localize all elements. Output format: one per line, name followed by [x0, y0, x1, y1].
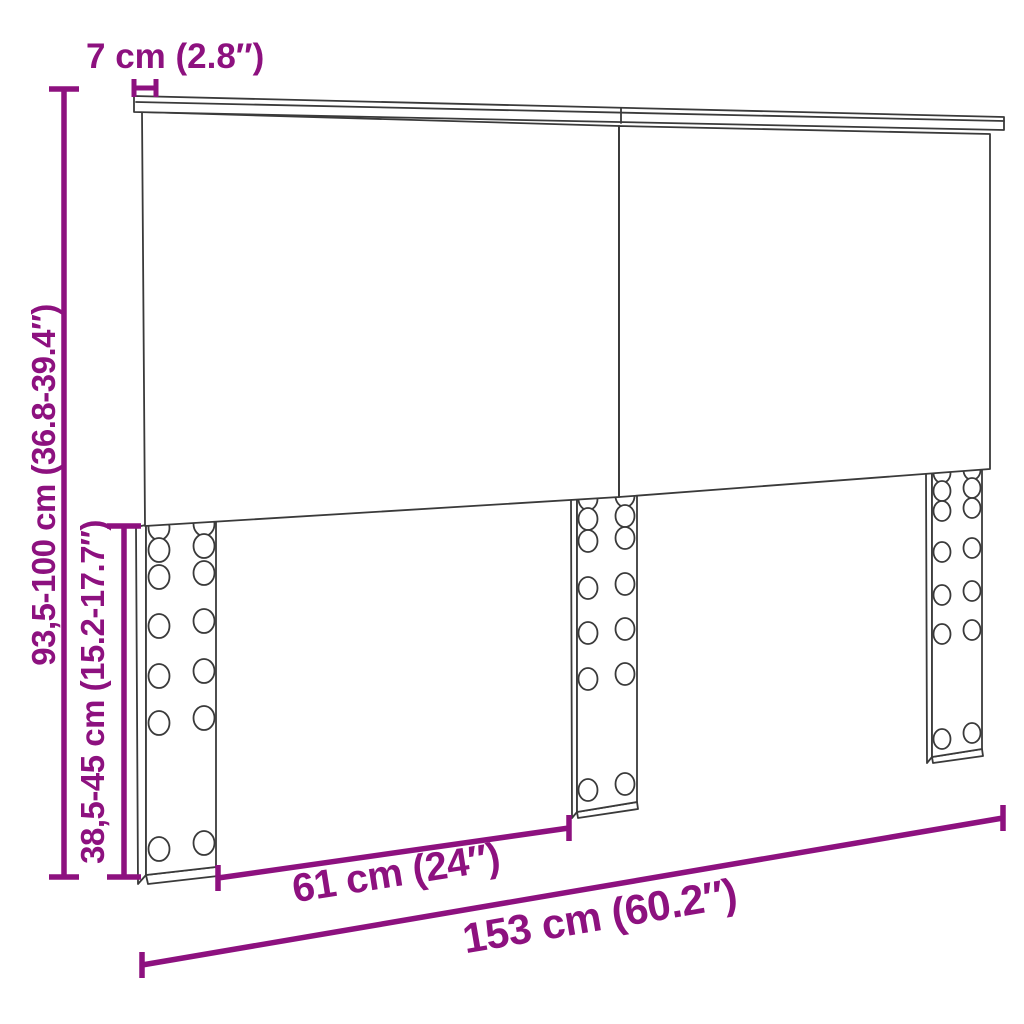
panel-left	[142, 112, 619, 526]
dim-leg-spacing-label: 61 cm (24″)	[289, 835, 503, 911]
dim-top-rail-thickness-label: 7 cm (2.8″)	[86, 37, 264, 76]
dim-total-width-label: 153 cm (60.2″)	[459, 869, 740, 962]
dim-total-height-label: 93,5-100 cm (36.8-39.4″)	[25, 304, 62, 666]
dim-top-rail-thickness: 7 cm (2.8″)	[86, 37, 264, 97]
dim-leg-height-label: 38,5-45 cm (15.2-17.7″)	[74, 520, 111, 864]
dim-total-width: 153 cm (60.2″)	[142, 805, 1003, 978]
dim-top-rail-thickness-bracket	[134, 79, 156, 97]
panel-left-face	[142, 112, 619, 526]
product-dimension-diagram: 7 cm (2.8″) 93,5-100 cm (36.8-39.4″) 38,…	[0, 0, 1024, 1024]
dim-total-height: 93,5-100 cm (36.8-39.4″)	[25, 89, 79, 877]
leg-middle	[571, 485, 638, 818]
headboard-diagram-canvas: 7 cm (2.8″) 93,5-100 cm (36.8-39.4″) 38,…	[0, 0, 1024, 1024]
leg-left	[136, 512, 218, 884]
leg-right	[926, 460, 983, 763]
dim-leg-spacing: 61 cm (24″)	[218, 815, 569, 911]
dim-leg-height: 38,5-45 cm (15.2-17.7″)	[74, 520, 141, 877]
panel-right-face	[619, 126, 990, 497]
leg-left-side-face	[136, 525, 146, 884]
panel-right	[619, 126, 990, 497]
dim-total-width-bracket	[142, 805, 1003, 978]
